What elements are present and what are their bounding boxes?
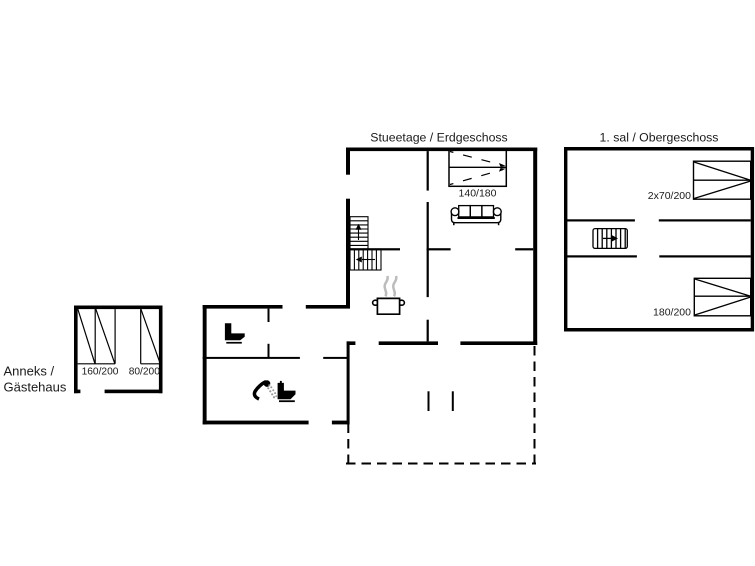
svg-text:Stueetage / Erdgeschoss: Stueetage / Erdgeschoss [370, 131, 507, 145]
svg-text:80/200: 80/200 [129, 366, 160, 377]
svg-text:180/200: 180/200 [653, 307, 691, 319]
svg-text:160/200: 160/200 [82, 366, 119, 377]
svg-text:Gästehaus: Gästehaus [4, 380, 67, 395]
svg-text:140/180: 140/180 [459, 188, 497, 200]
svg-text:Anneks /: Anneks / [4, 364, 55, 379]
svg-text:2x70/200: 2x70/200 [648, 190, 691, 202]
svg-text:1. sal / Obergeschoss: 1. sal / Obergeschoss [600, 131, 719, 145]
